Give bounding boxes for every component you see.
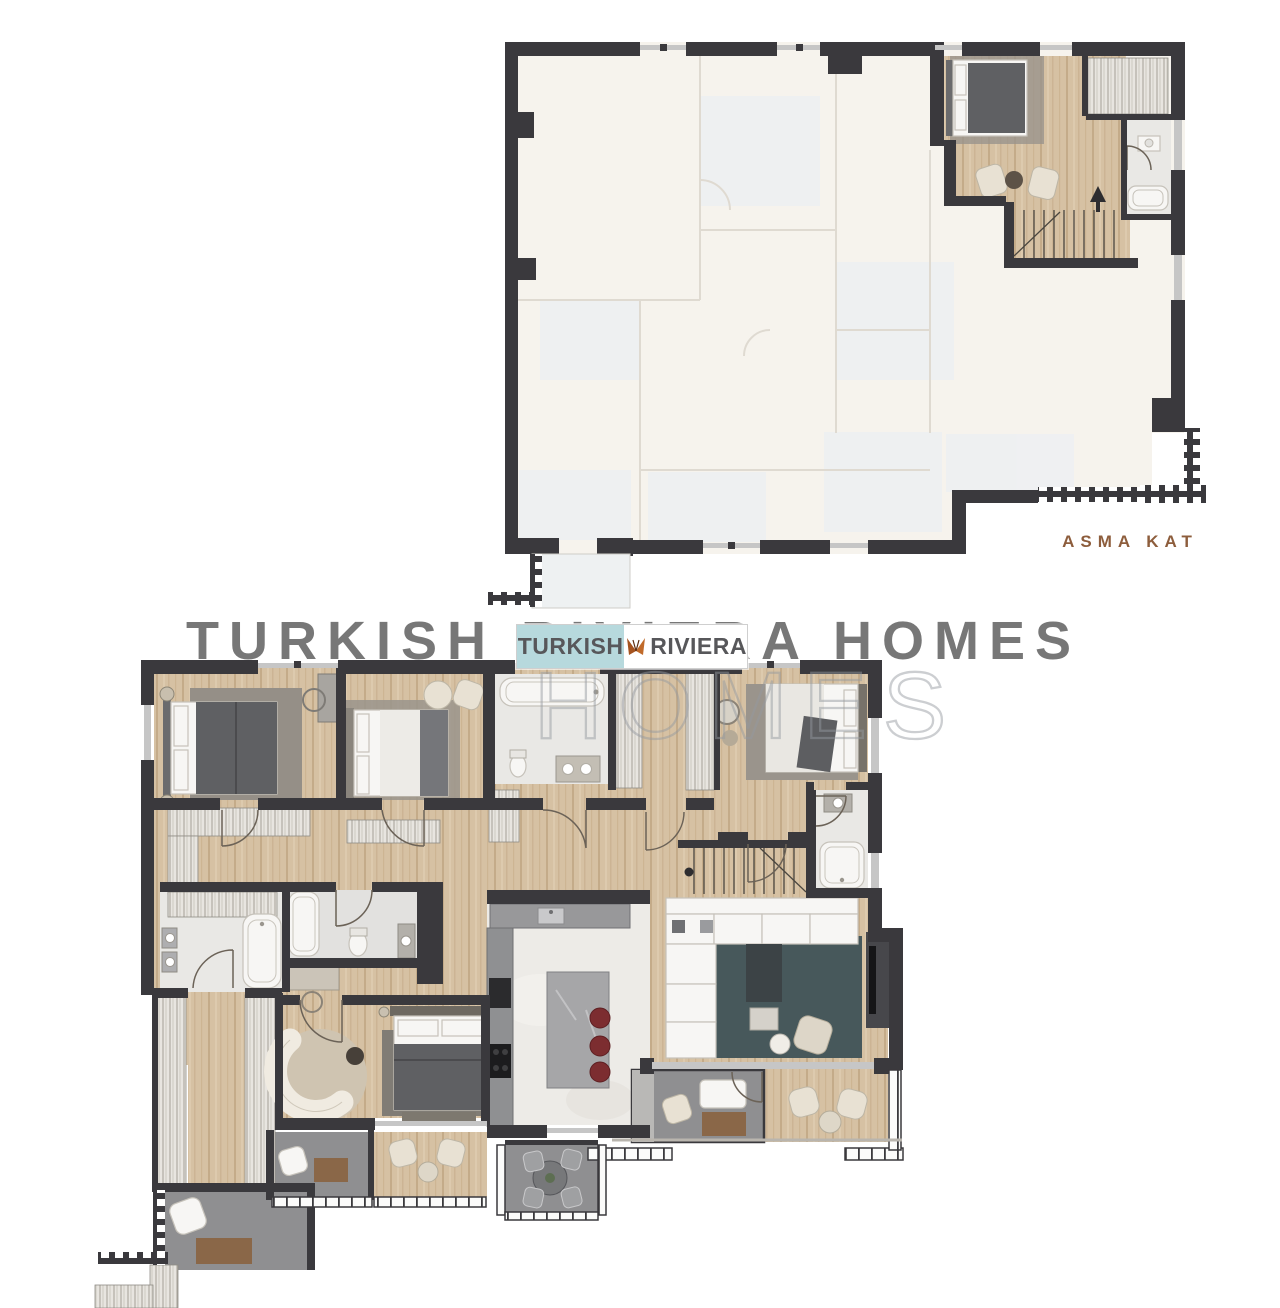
cooktop — [489, 1044, 511, 1078]
bed-bench — [402, 1112, 476, 1121]
kitchen-counter-left — [487, 928, 513, 1126]
butterfly-icon — [624, 636, 648, 658]
bed-headboard — [946, 60, 953, 136]
bar-stool — [590, 1036, 610, 1056]
logo-right-text: RIVIERA — [650, 633, 747, 660]
coffee-table — [746, 944, 782, 1002]
lower-stairs — [684, 848, 808, 894]
upper-floor-plan: ASMA KAT — [488, 42, 1206, 608]
bedroom-1-bed — [160, 687, 277, 809]
sofa-back — [666, 898, 858, 914]
oven — [489, 978, 511, 1008]
upper-bedroom — [946, 56, 1044, 144]
side-table — [346, 1047, 364, 1065]
side-table — [770, 1034, 790, 1054]
upper-bathroom — [1125, 120, 1171, 214]
bar-stool — [590, 1008, 610, 1028]
pouf — [1005, 171, 1023, 189]
tv-screen — [869, 946, 876, 1014]
loveseat — [700, 1080, 746, 1108]
upper-wardrobe — [1088, 58, 1168, 114]
logo-right: RIVIERA — [624, 625, 747, 668]
upper-terrace — [532, 554, 630, 608]
bedroom-2-bed — [346, 708, 448, 798]
upper-floor-label: ASMA KAT — [1062, 532, 1198, 551]
floorplan-page: TURKISH RIVIERA HOMES — [0, 0, 1280, 1308]
balcony-table — [702, 1112, 746, 1136]
dressing-wardrobe-left — [156, 995, 186, 1187]
marble-table — [750, 1008, 778, 1030]
bar-stool — [590, 1062, 610, 1082]
brand-logo: TURKISH RIVIERA — [516, 624, 748, 669]
logo-left: TURKISH — [517, 625, 624, 668]
